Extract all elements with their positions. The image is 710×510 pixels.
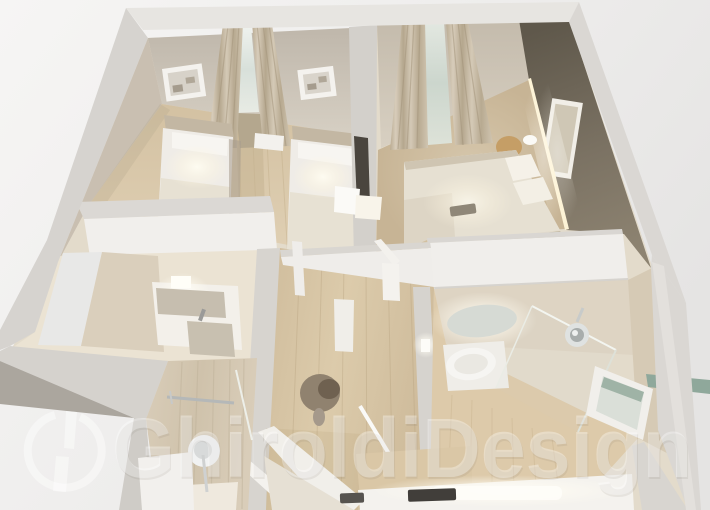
svg-text:GhiroldiDesign: GhiroldiDesign [112,401,692,495]
